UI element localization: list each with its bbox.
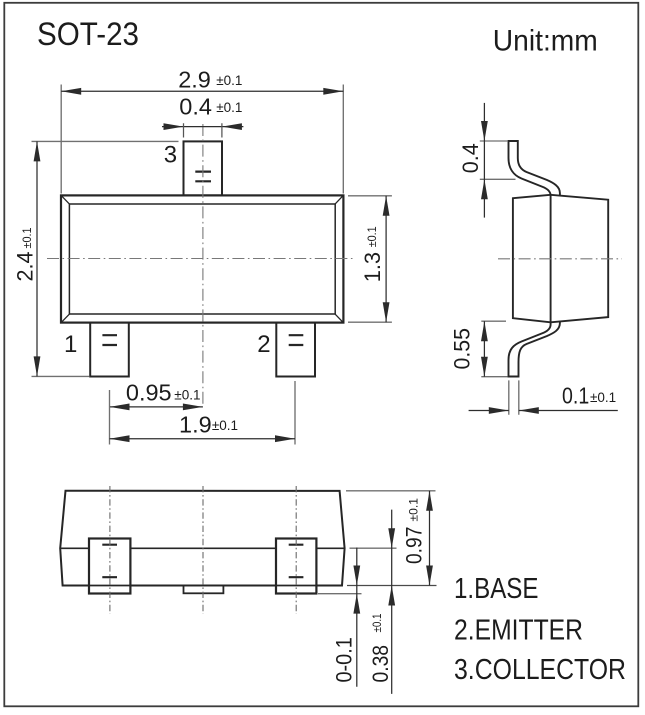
svg-text:0.1: 0.1: [562, 382, 589, 408]
svg-text:0.4: 0.4: [179, 94, 212, 120]
svg-text:±0.1: ±0.1: [174, 388, 200, 403]
svg-text:1.9: 1.9: [179, 412, 212, 438]
svg-text:2.4: 2.4: [13, 252, 38, 282]
svg-text:±0.1: ±0.1: [216, 73, 242, 88]
svg-text:±0.1: ±0.1: [216, 100, 242, 115]
svg-text:3.COLLECTOR: 3.COLLECTOR: [454, 654, 626, 686]
svg-text:0-0.1: 0-0.1: [331, 637, 356, 682]
svg-text:±0.1: ±0.1: [407, 498, 421, 522]
svg-text:2.9: 2.9: [178, 67, 211, 93]
svg-text:0.38: 0.38: [368, 645, 393, 683]
svg-text:Unit:mm: Unit:mm: [493, 24, 598, 57]
svg-text:0.95: 0.95: [126, 380, 172, 406]
svg-text:1: 1: [64, 331, 77, 358]
svg-text:1.3: 1.3: [360, 252, 385, 282]
svg-text:2: 2: [257, 331, 270, 358]
svg-text:2.EMITTER: 2.EMITTER: [454, 614, 583, 646]
svg-text:±0.1: ±0.1: [20, 227, 34, 248]
svg-text:±0.1: ±0.1: [590, 390, 616, 405]
svg-text:SOT-23: SOT-23: [37, 16, 139, 52]
svg-text:3: 3: [164, 141, 177, 168]
svg-text:±0.1: ±0.1: [365, 226, 379, 247]
svg-text:0.97: 0.97: [401, 527, 426, 564]
svg-text:0.55: 0.55: [450, 328, 475, 370]
svg-text:0.4: 0.4: [458, 143, 483, 173]
svg-text:±0.1: ±0.1: [212, 418, 238, 433]
svg-text:±0.1: ±0.1: [372, 614, 384, 633]
svg-text:1.BASE: 1.BASE: [454, 573, 539, 605]
